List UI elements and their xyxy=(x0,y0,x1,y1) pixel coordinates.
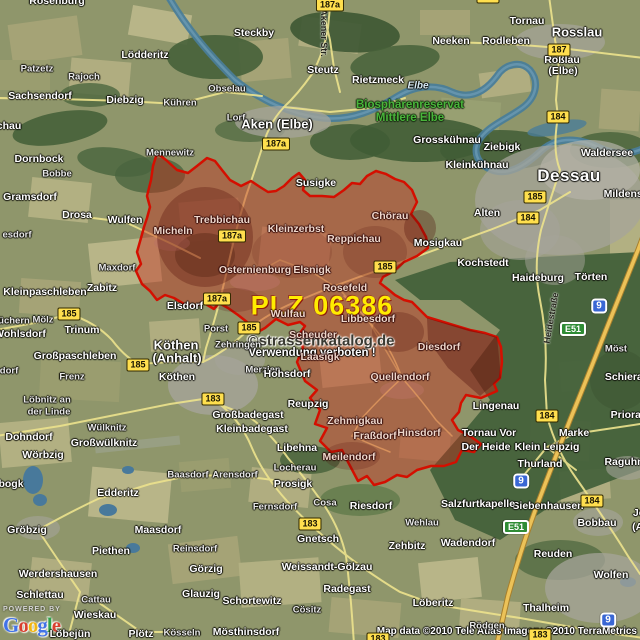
town-label: Großbadegast xyxy=(212,409,283,421)
town-label: Neeken xyxy=(432,35,469,47)
town-label: Dohndorf xyxy=(5,431,52,443)
town-label: Raguhn xyxy=(604,456,640,468)
street-label: Heidestraße xyxy=(542,292,561,344)
town-label: Micheln xyxy=(153,225,192,237)
town-label: Reinsdorf xyxy=(173,544,217,555)
town-label: Reppichau xyxy=(327,233,381,245)
town-label: Libehna xyxy=(277,442,317,454)
town-label: Wohlsdorf xyxy=(0,328,46,340)
town-label: Löberitz xyxy=(413,597,454,609)
road-shield: 187a xyxy=(218,230,246,243)
town-label: Der Heide xyxy=(461,441,510,453)
road-shield: 185 xyxy=(57,308,80,321)
map-copyright: Map data ©2010 Tele Atlas Imagery ©2010 … xyxy=(377,626,637,637)
town-label: Laasigk xyxy=(300,351,339,363)
town-label: Gramsdorf xyxy=(3,191,57,203)
town-label: Edderitz xyxy=(97,487,138,499)
town-label: Grosskühnau xyxy=(413,134,481,146)
town-label: bogk xyxy=(0,478,24,490)
town-label: Rodleben xyxy=(482,35,530,47)
town-label: Bobbe xyxy=(42,169,72,180)
town-label: Diebzig xyxy=(106,94,143,106)
town-label: Thurland xyxy=(518,458,563,470)
town-label: Obselau xyxy=(208,84,246,95)
town-label: Kösseln xyxy=(164,628,201,639)
town-label: Haideburg xyxy=(512,272,564,284)
town-label: Rosefeld xyxy=(323,282,367,294)
road-shield: 184 xyxy=(516,212,539,225)
town-label: Lödderitz xyxy=(121,49,168,61)
town-label: Wörbzig xyxy=(22,449,63,461)
town-label: dorf xyxy=(0,366,18,377)
road-shield: 187a xyxy=(316,0,344,12)
town-label: Wehlau xyxy=(405,518,439,529)
town-label: Rajoch xyxy=(68,72,100,83)
town-label: Alten xyxy=(474,207,500,219)
town-label: Hinsdorf xyxy=(397,427,440,439)
town-label: Kleinbadegast xyxy=(216,423,288,435)
road-shield: 187a xyxy=(262,138,290,151)
town-label: Porst xyxy=(204,324,228,335)
town-label: Wieskau xyxy=(74,609,117,621)
road-shield: 9 xyxy=(513,474,529,489)
town-label: Zehringen xyxy=(215,340,261,351)
town-label: Diesdorf xyxy=(418,341,461,353)
town-label: Elsnigk xyxy=(293,264,330,276)
road-shield: 185 xyxy=(523,191,546,204)
road-shield: 184 xyxy=(546,111,569,124)
town-label: Kochstedt xyxy=(457,257,508,269)
road-shield: 183 xyxy=(528,629,551,640)
town-label: Löbnitz an xyxy=(23,395,71,406)
town-label: Plötz xyxy=(128,628,153,640)
google-logo-letter: G xyxy=(3,613,18,637)
town-label: Mosigkau xyxy=(414,237,462,249)
town-label: Kleinzerbst xyxy=(268,223,325,235)
town-label: Klein Leipzig xyxy=(515,441,580,453)
town-label: Dessau xyxy=(537,166,600,186)
town-label: Törten xyxy=(575,271,608,283)
town-label: Schierau xyxy=(605,371,640,383)
town-label: Marke xyxy=(559,427,589,439)
town-label: Rosslau xyxy=(552,25,603,40)
road-shield: 183 xyxy=(298,518,321,531)
town-label: Maxdorf xyxy=(99,263,136,274)
town-label: Waldersee xyxy=(581,147,633,159)
town-label: Trebbichau xyxy=(194,214,250,226)
town-label: Zehmigkau xyxy=(327,415,382,427)
town-label: Elbe xyxy=(407,81,428,92)
road-shield: E51 xyxy=(560,322,586,336)
town-label: Mildensee xyxy=(604,188,640,200)
google-logo-letter: o xyxy=(18,613,28,637)
town-label: Zehbitz xyxy=(389,540,426,552)
town-label: Trinum xyxy=(64,324,99,336)
town-label: Wulfen xyxy=(108,214,143,226)
town-label: Libbesdorf xyxy=(341,313,395,325)
town-label: Mennewitz xyxy=(146,148,194,159)
town-label: Wülknitz xyxy=(87,423,126,434)
street-label: Akener Str. xyxy=(319,9,329,57)
town-label: Biosphärenreservat xyxy=(356,99,464,111)
road-shield: 185 xyxy=(373,261,396,274)
town-label: Tornau Vor xyxy=(462,427,516,439)
town-label: Aken (Elbe) xyxy=(241,117,313,132)
town-label: Radegast xyxy=(323,583,370,595)
town-label: Weissandt-Gölzau xyxy=(282,561,373,573)
google-logo-letter: g xyxy=(37,613,47,637)
road-shield: 184 xyxy=(535,410,558,423)
town-label: Zabitz xyxy=(87,282,117,294)
town-label: Lingenau xyxy=(473,400,520,412)
town-label: Fraßdorf xyxy=(353,430,396,442)
town-label: üchern xyxy=(0,316,30,327)
town-label: Arensdorf xyxy=(212,470,257,481)
road-shield: 183 xyxy=(201,393,224,406)
town-label: Steutz xyxy=(307,64,339,76)
town-label: Jeßnitz xyxy=(633,507,640,519)
town-label: Siebenhausen xyxy=(512,500,583,512)
town-label: (Elbe) xyxy=(548,65,577,77)
road-shield: 187 xyxy=(476,0,499,4)
town-label: Baasdorf xyxy=(167,470,208,481)
town-label: Cösitz xyxy=(293,605,322,616)
town-label: Glauzig xyxy=(182,588,220,600)
town-label: Wulfau xyxy=(271,308,306,320)
town-label: chau xyxy=(0,120,21,132)
town-label: Drosa xyxy=(62,209,92,221)
town-label: Gröbzig xyxy=(7,524,47,536)
road-shield: 185 xyxy=(126,359,149,372)
town-label: Rosenburg xyxy=(29,0,84,7)
town-label: Cosa xyxy=(313,498,336,509)
road-shield: 183 xyxy=(366,633,389,640)
town-label: Schlettau xyxy=(16,589,63,601)
town-label: Quellendorf xyxy=(371,371,430,383)
town-label: Scheuder xyxy=(289,329,337,341)
town-label: Löbejün xyxy=(50,628,91,640)
town-label: Piethen xyxy=(92,545,130,557)
town-label: der Linde xyxy=(28,407,71,418)
road-shield: E51 xyxy=(503,520,529,534)
town-label: Mittlere Elbe xyxy=(376,112,444,124)
town-label: Sachsendorf xyxy=(8,90,72,102)
town-label: Schortewitz xyxy=(223,595,282,607)
town-label: Köthen xyxy=(159,371,195,383)
road-shield: 187a xyxy=(203,293,231,306)
town-label: (Anhalt) xyxy=(632,521,640,533)
town-label: Kleinkühnau xyxy=(445,159,508,171)
town-label: Susigke xyxy=(296,177,336,189)
road-shield: 9 xyxy=(591,299,607,314)
town-label: Rödgen xyxy=(469,621,504,632)
town-label: (Anhalt) xyxy=(152,351,201,366)
town-label: Gnetsch xyxy=(297,533,339,545)
road-shield: 187 xyxy=(547,44,570,57)
town-label: Ziebigk xyxy=(484,141,521,153)
town-label: Reuden xyxy=(534,548,573,560)
town-label: Mölz xyxy=(32,315,53,326)
town-label: Fernsdorf xyxy=(253,502,297,513)
town-label: Meilendorf xyxy=(322,451,375,463)
town-label: Mösthinsdorf xyxy=(213,626,280,638)
town-label: Tornau xyxy=(510,15,545,27)
town-label: Osternienburg xyxy=(219,264,291,276)
road-shield: 184 xyxy=(580,495,603,508)
town-label: Frenz xyxy=(59,372,84,383)
town-label: Hohsdorf xyxy=(264,368,311,380)
town-label: Steckby xyxy=(234,27,274,39)
road-shield: 9 xyxy=(600,613,616,628)
town-label: Maasdorf xyxy=(135,524,182,536)
town-label: Dornbock xyxy=(14,153,63,165)
town-label: Kühren xyxy=(163,98,196,109)
town-label: Elsdorf xyxy=(167,300,203,312)
powered-by-label: POWERED BY xyxy=(3,606,61,613)
town-label: Wadendorf xyxy=(441,537,495,549)
town-label: Bobbau xyxy=(577,517,616,529)
town-label: Cattau xyxy=(81,595,111,606)
google-logo-letter: o xyxy=(28,613,38,637)
town-label: Möst xyxy=(605,344,627,355)
road-shield: 185 xyxy=(237,322,260,335)
town-label: Prosigk xyxy=(274,478,313,490)
map-viewport: PLZ 06386 ©strassenkatalog.de Verwendung… xyxy=(0,0,640,640)
town-label: Großwülknitz xyxy=(71,437,138,449)
town-label: Werdershausen xyxy=(19,568,98,580)
town-label: Thalheim xyxy=(523,602,569,614)
town-label: Großpaschleben xyxy=(34,350,117,362)
town-label: Kleinpaschleben xyxy=(3,286,86,298)
town-label: esdorf xyxy=(2,230,31,241)
town-label: Priorau xyxy=(611,409,640,421)
town-label: Locherau xyxy=(274,463,317,474)
town-label: Salzfurtkapelle xyxy=(441,498,515,510)
town-label: Rietzmeck xyxy=(352,74,404,86)
town-label: Chörau xyxy=(372,210,409,222)
town-label: Riesdorf xyxy=(350,500,393,512)
town-label: Görzig xyxy=(189,563,222,575)
town-label: Reupzig xyxy=(288,398,329,410)
labels-layer: PLZ 06386 ©strassenkatalog.de Verwendung… xyxy=(0,0,640,640)
town-label: Wolfen xyxy=(594,569,629,581)
town-label: Patzetz xyxy=(21,64,54,75)
